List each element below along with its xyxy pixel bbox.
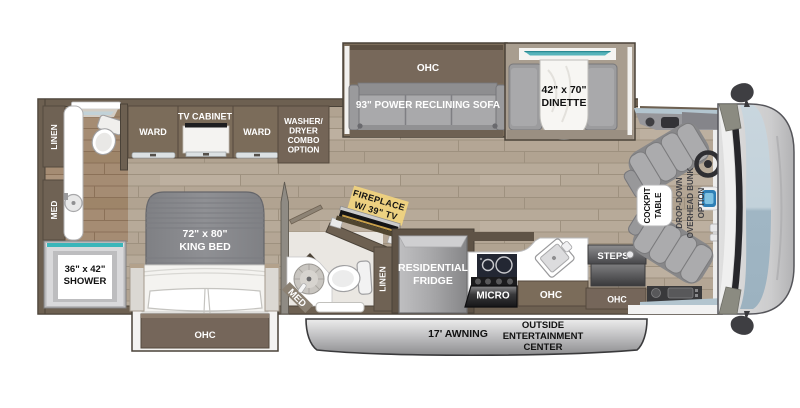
svg-text:36" x 42": 36" x 42"	[65, 264, 106, 275]
svg-text:WASHER/: WASHER/	[284, 116, 323, 126]
svg-text:KING BED: KING BED	[179, 241, 231, 253]
svg-text:OVERHEAD BUNK: OVERHEAD BUNK	[686, 167, 695, 238]
svg-text:42" x 70": 42" x 70"	[542, 84, 587, 96]
svg-text:OPTION: OPTION	[288, 145, 320, 155]
svg-text:RESIDENTIAL: RESIDENTIAL	[398, 262, 469, 274]
svg-text:TABLE: TABLE	[654, 192, 663, 219]
svg-text:COCKPIT: COCKPIT	[643, 187, 652, 223]
svg-text:MICRO: MICRO	[476, 291, 510, 302]
svg-text:LINEN: LINEN	[49, 124, 59, 150]
svg-text:OHC: OHC	[540, 290, 562, 301]
svg-text:OUTSIDE: OUTSIDE	[522, 320, 564, 331]
svg-text:FRIDGE: FRIDGE	[413, 275, 453, 287]
svg-text:STEPS: STEPS	[597, 251, 628, 262]
svg-text:TV CABINET: TV CABINET	[178, 112, 233, 122]
svg-text:CENTER: CENTER	[523, 342, 562, 353]
svg-text:OPTION: OPTION	[697, 187, 706, 218]
svg-text:ENTERTAINMENT: ENTERTAINMENT	[503, 331, 584, 342]
svg-text:COMBO: COMBO	[288, 135, 320, 145]
svg-text:93" POWER RECLINING SOFA: 93" POWER RECLINING SOFA	[356, 100, 500, 111]
svg-text:OHC: OHC	[417, 63, 439, 74]
svg-text:MED: MED	[49, 201, 59, 220]
svg-text:OHC: OHC	[607, 295, 627, 305]
svg-text:OHC: OHC	[194, 330, 215, 341]
svg-text:DINETTE: DINETTE	[542, 97, 587, 109]
svg-text:72" x 80": 72" x 80"	[183, 228, 228, 240]
svg-text:LINEN: LINEN	[378, 266, 388, 292]
svg-text:17' AWNING: 17' AWNING	[428, 328, 488, 340]
svg-text:DRYER: DRYER	[289, 126, 318, 136]
svg-text:WARD: WARD	[243, 127, 271, 137]
svg-text:WARD: WARD	[139, 127, 167, 137]
svg-text:SHOWER: SHOWER	[64, 276, 107, 287]
svg-text:DROP-DOWN: DROP-DOWN	[675, 177, 684, 228]
